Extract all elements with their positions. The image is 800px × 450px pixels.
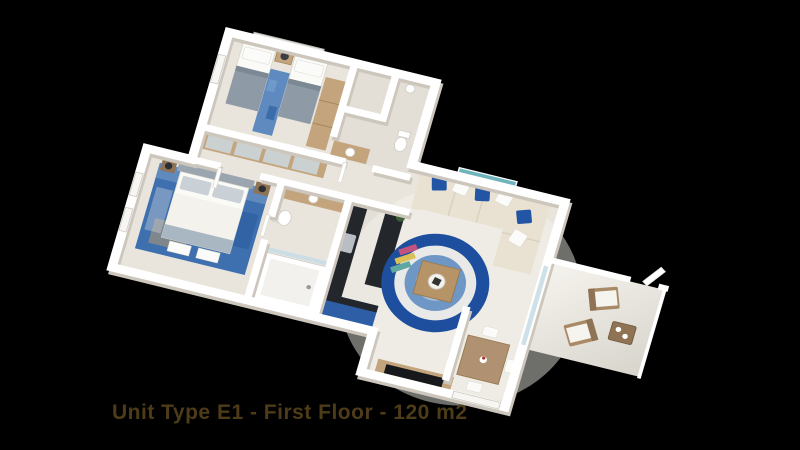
floor-plan-render: Unit Type E1 - First Floor - 120 m2 — [0, 0, 800, 450]
floor-plan-canvas: Unit Type E1 - First Floor - 120 m2 — [0, 0, 800, 450]
lounge-chair-a — [588, 287, 620, 311]
throw-pillow — [516, 209, 532, 224]
caption: Unit Type E1 - First Floor - 120 m2 — [112, 401, 468, 424]
